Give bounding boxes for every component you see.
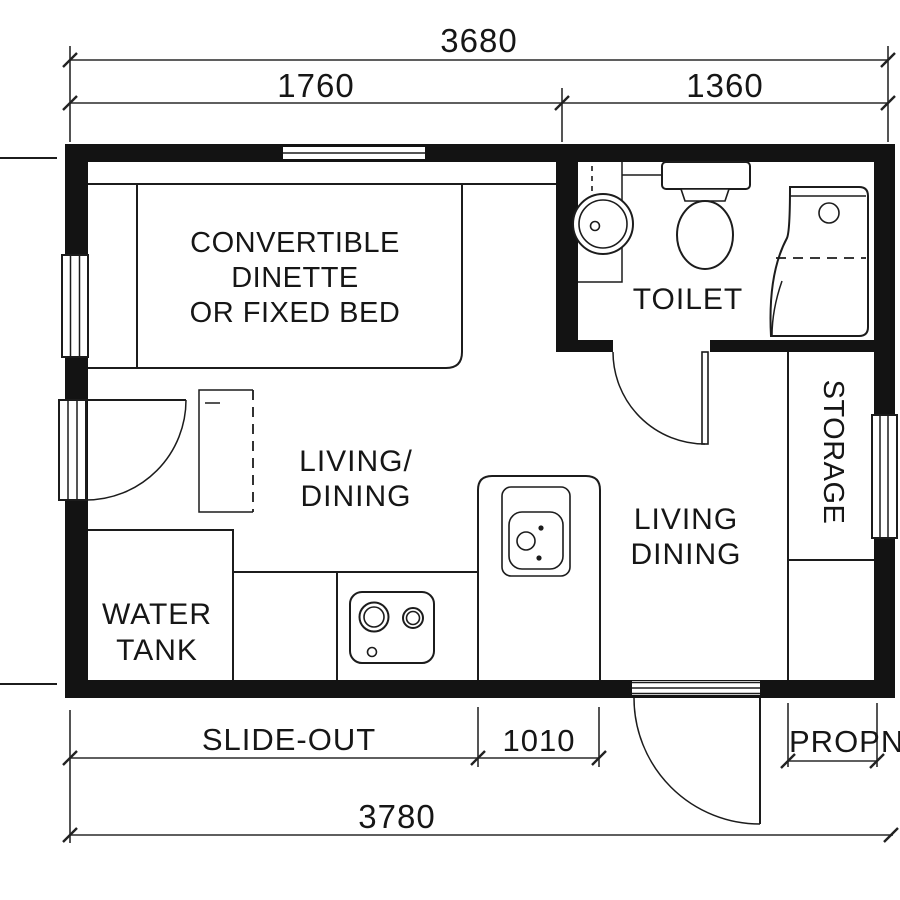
bathroom-sink-inner — [579, 200, 627, 248]
room-label-dinette-line2: DINETTE — [231, 262, 359, 294]
room-label-toilet: TOILET — [633, 283, 743, 316]
floor-plan-sheet: 3680 1760 1360 CONVERTIBLE DINETTE OR FI… — [0, 0, 900, 900]
dimension-lines — [63, 46, 898, 843]
dim-label-right-top: 1360 — [686, 67, 763, 104]
door-bathroom-leaf — [702, 352, 708, 444]
room-label-storage: STORAGE — [817, 380, 849, 525]
door-left-jamb — [59, 400, 86, 500]
stove-burner-small-inner — [407, 612, 420, 625]
room-label-water-tank-line2: TANK — [116, 634, 198, 667]
room-label-living-left-line2: DINING — [301, 480, 412, 513]
dim-label-total-top: 3680 — [440, 22, 517, 59]
room-label-living-left-line1: LIVING/ — [299, 445, 413, 478]
dim-label-left-top: 1760 — [277, 67, 354, 104]
window-left — [62, 255, 88, 357]
dim-label-slide-out: SLIDE-OUT — [202, 722, 376, 757]
bathroom-sink-tap — [591, 222, 600, 231]
shower-drain — [819, 203, 839, 223]
room-label-dinette-line3: OR FIXED BED — [190, 297, 401, 329]
reference-lines — [0, 158, 57, 684]
room-label-dinette-line1: CONVERTIBLE — [190, 227, 400, 259]
dim-label-total-bottom: 3780 — [358, 798, 435, 835]
kitchen-sink-tap-dot — [536, 555, 541, 560]
window-right — [872, 415, 897, 538]
door-entry-swing-arc — [634, 698, 760, 824]
floor-plan-drawing: 3680 1760 1360 CONVERTIBLE DINETTE OR FI… — [0, 0, 900, 900]
door-bathroom-swing-arc — [613, 352, 705, 444]
bathroom-door-opening — [613, 338, 710, 354]
dim-label-1010: 1010 — [503, 723, 576, 758]
kitchen-sink-drain — [517, 532, 535, 550]
toilet-tank — [662, 162, 750, 189]
wall-bathroom-left — [556, 144, 578, 352]
wall-bottom — [65, 680, 895, 698]
toilet-bowl — [677, 201, 733, 269]
doors — [86, 352, 760, 824]
room-label-water-tank-line1: WATER — [102, 598, 212, 631]
kitchen-sink-tap-dot — [538, 525, 543, 530]
door-left-swing-arc — [86, 400, 186, 500]
room-label-living-right-line1: LIVING — [634, 503, 738, 536]
stove-burner-large-inner — [364, 607, 384, 627]
stove-knob — [368, 648, 377, 657]
dim-label-propane: PROPNE — [789, 724, 900, 759]
room-label-living-right-line2: DINING — [631, 538, 742, 571]
toilet-neck — [681, 189, 729, 201]
labels: 3680 1760 1360 CONVERTIBLE DINETTE OR FI… — [102, 22, 900, 835]
folding-table-outline — [199, 390, 253, 512]
wall-bathroom-bottom — [556, 340, 874, 352]
wall-top — [65, 144, 895, 162]
